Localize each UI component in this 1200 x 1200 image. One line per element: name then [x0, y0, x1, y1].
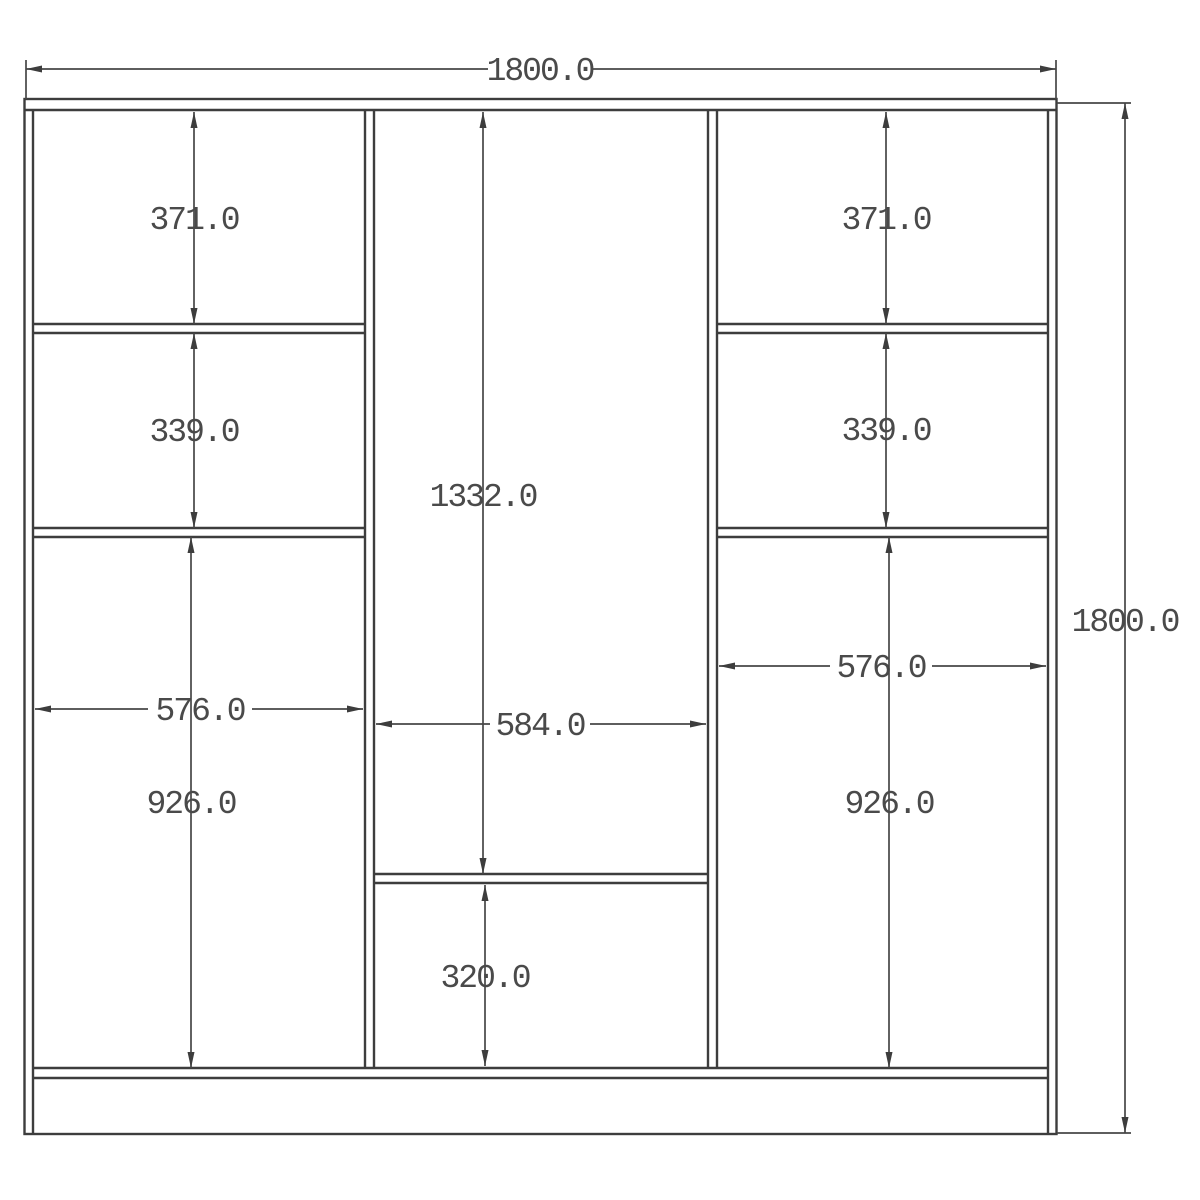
- dim-label-left-top: 371.0: [149, 202, 238, 239]
- dim-label-right-mid: 339.0: [841, 413, 930, 450]
- dim-label-overall-height: 1800.0: [1072, 604, 1179, 641]
- dim-label-center-upper: 1332.0: [430, 479, 537, 516]
- dim-label-overall-width: 1800.0: [487, 53, 594, 90]
- dim-label-center-width: 584.0: [495, 708, 584, 745]
- dim-label-left-mid: 339.0: [149, 414, 238, 451]
- dim-label-left-width: 576.0: [155, 693, 244, 730]
- dim-label-left-bottom: 926.0: [146, 786, 235, 823]
- canvas-background: [0, 0, 1200, 1200]
- dim-label-right-bottom: 926.0: [844, 786, 933, 823]
- dim-label-right-width: 576.0: [836, 650, 925, 687]
- technical-drawing-page: 1800.0 1800.0 371.0 339.0: [0, 0, 1200, 1200]
- dim-label-right-top: 371.0: [841, 202, 930, 239]
- wardrobe-dimension-drawing: 1800.0 1800.0 371.0 339.0: [0, 0, 1200, 1200]
- dim-label-center-lower: 320.0: [440, 960, 529, 997]
